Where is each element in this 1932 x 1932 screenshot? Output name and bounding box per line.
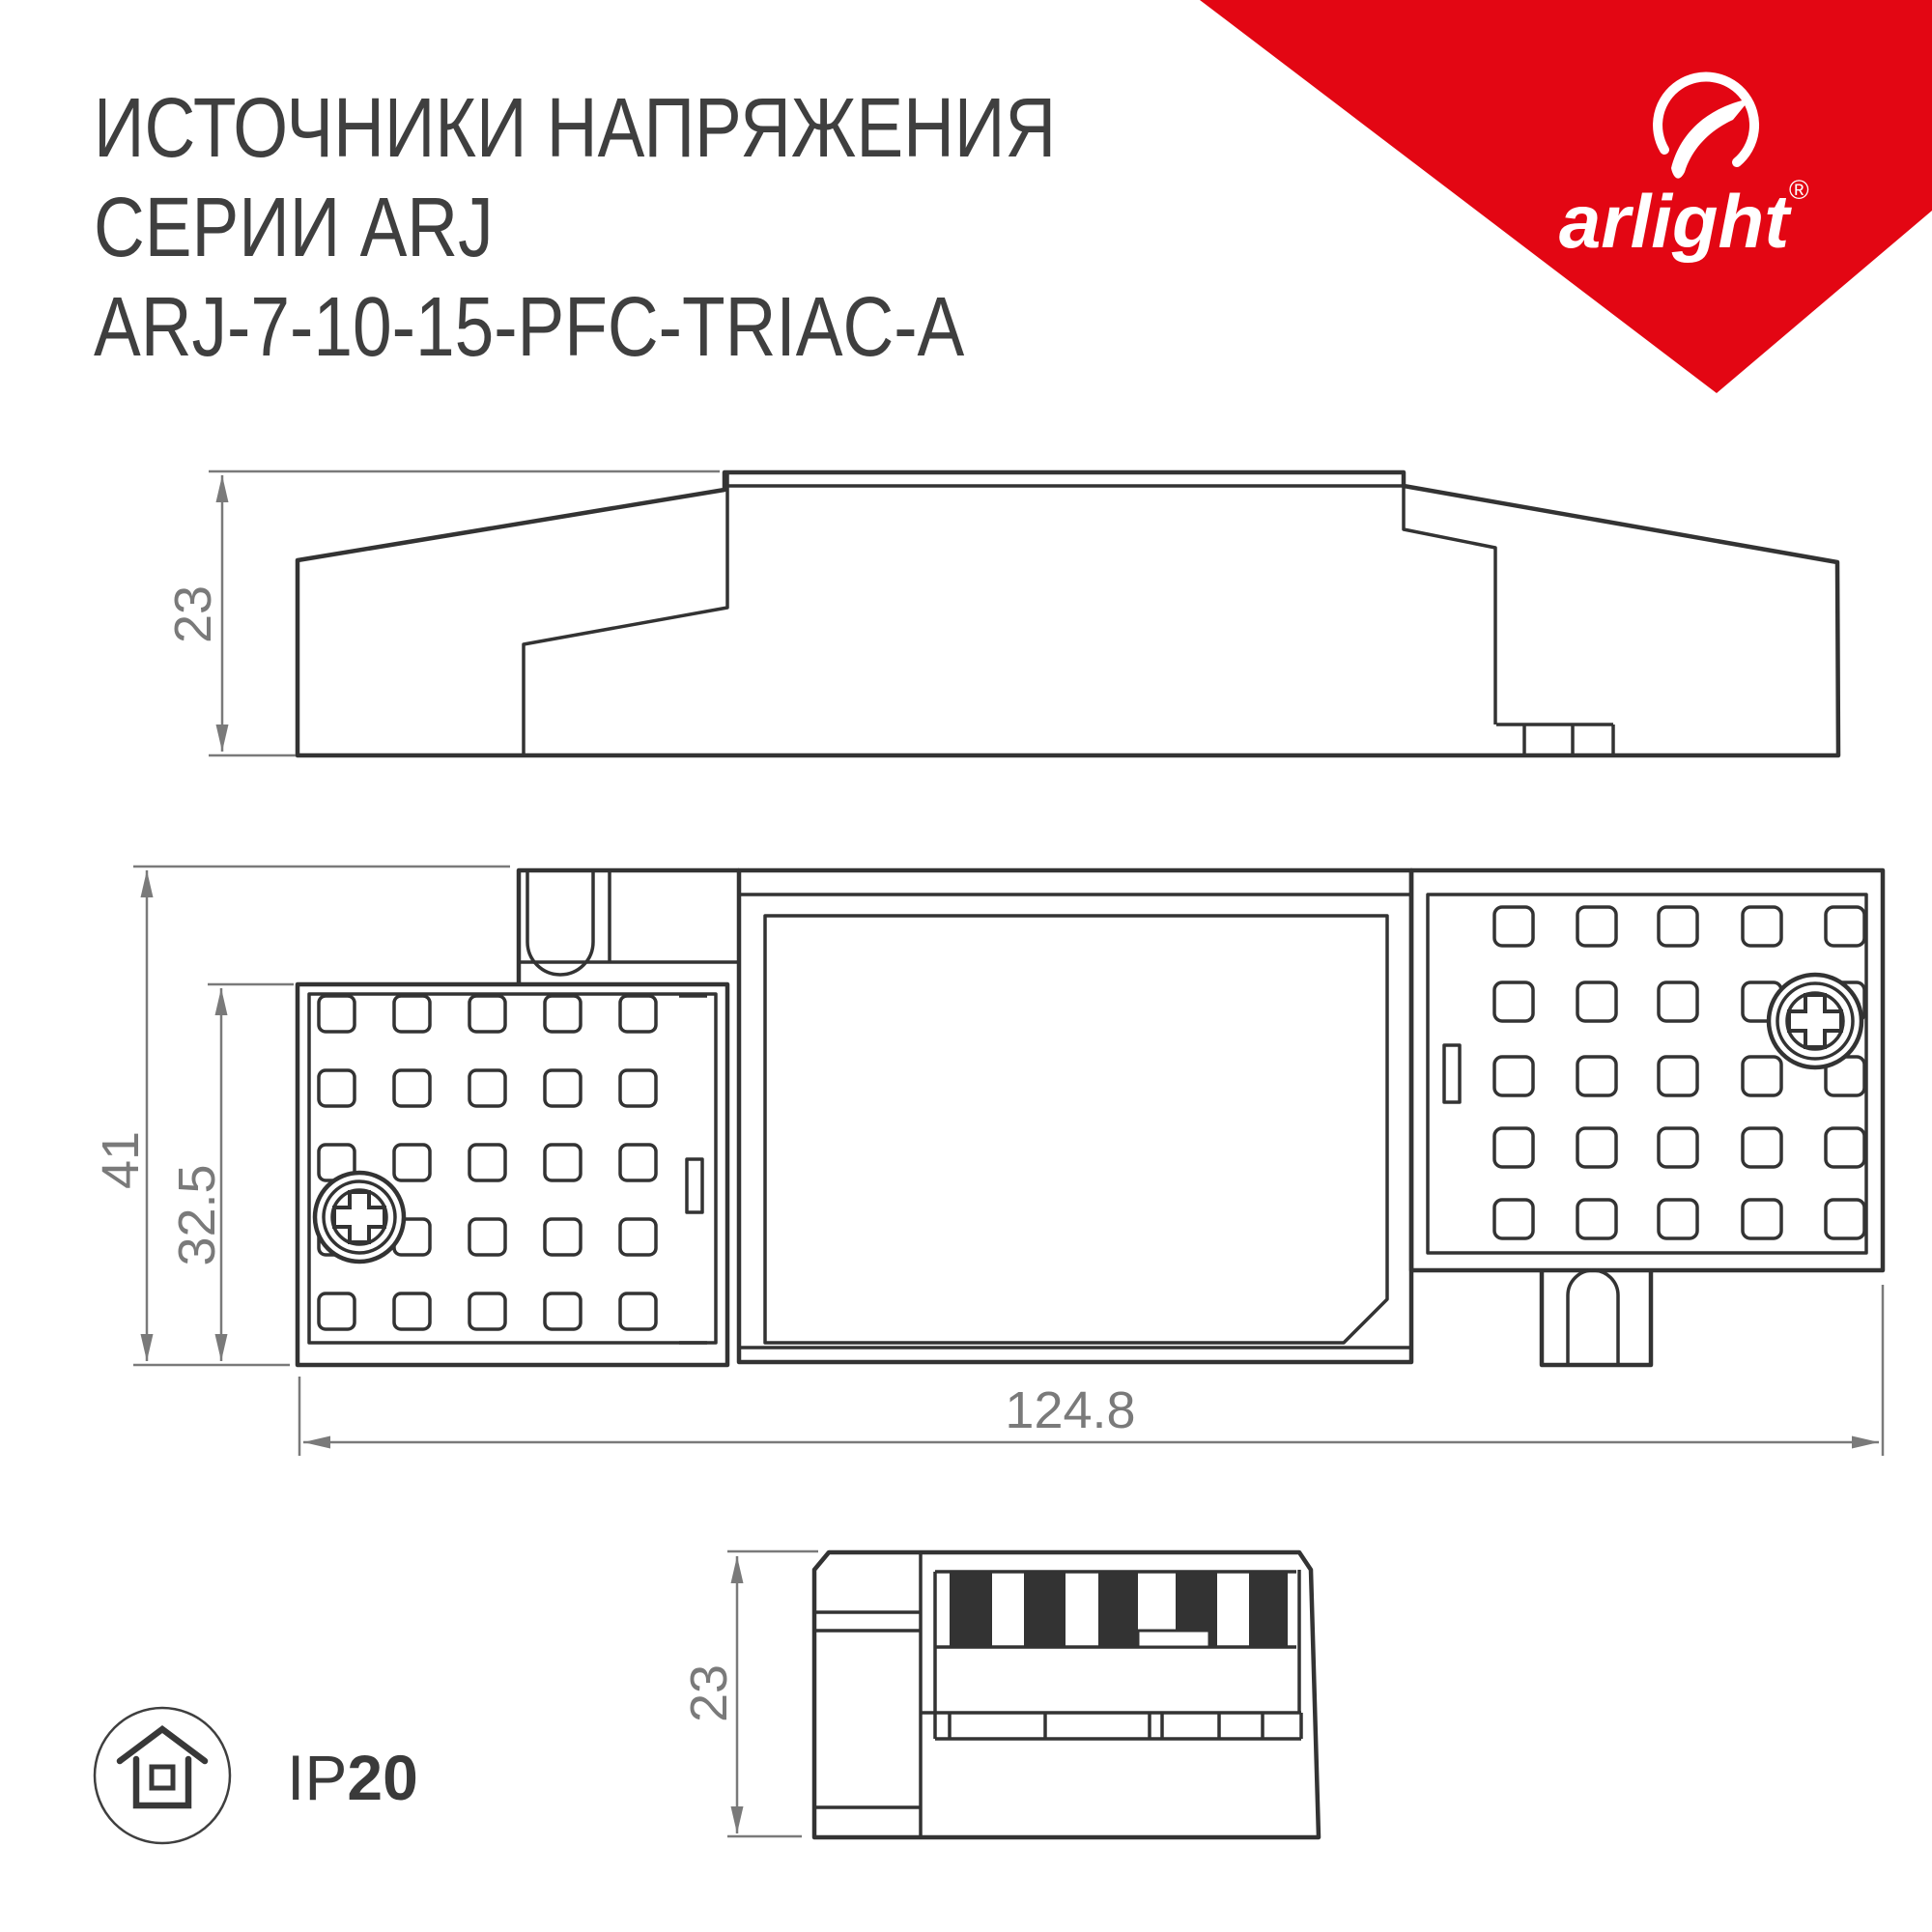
center-body-outline [739,870,1411,1362]
dim-side-height: 23 [164,471,720,755]
dim-label-body-width: 32.5 [168,1164,226,1265]
mounting-tab-bottom [1542,1270,1651,1365]
left-cap-latch [687,1159,702,1212]
dim-extension-lines [727,1551,818,1836]
dim-label-side-height: 23 [164,585,222,643]
ip-prefix: IP [287,1742,347,1813]
dim-label-length: 124.8 [1005,1381,1135,1439]
vent-hole-grid-right [1494,907,1864,1238]
terminal-slot [1098,1572,1138,1647]
right-end-cap [1411,870,1883,1270]
end-view-drawing: 23 [680,1551,1319,1837]
terminal-slot-cutout [1138,1631,1209,1647]
terminal-strip-lower [921,1713,1301,1739]
brand-logo: arlight ® [1200,0,1932,393]
dim-end-height: 23 [680,1551,818,1836]
center-body [739,870,1411,1362]
right-cap-outline [1411,870,1883,1270]
logo-registered-mark: ® [1789,175,1809,205]
tab-top-u-slot [527,870,593,975]
dim-length: 124.8 [299,1285,1883,1456]
header-title: ИСТОЧНИКИ НАПРЯЖЕНИЯ СЕРИИ ARJ ARJ-7-10-… [94,81,1056,374]
side-view-inner-step-left [524,472,727,753]
ip-rating-label: IP20 [287,1742,418,1813]
tab-bottom-outline [1542,1270,1651,1365]
screw-right [1769,975,1861,1067]
ip-value: 20 [347,1742,417,1813]
logo-wordmark: arlight [1559,179,1792,264]
dim-total-width: 41 [92,867,510,1365]
end-view-outline [814,1552,1319,1837]
left-end-cap [298,984,727,1365]
datasheet-page: ИСТОЧНИКИ НАПРЯЖЕНИЯ СЕРИИ ARJ ARJ-7-10-… [0,0,1932,1932]
screw-left [315,1173,404,1262]
label-area-rect [765,916,1387,1343]
title-line-3: ARJ-7-10-15-PFC-TRIAC-A [94,280,965,374]
right-cap-latch [1444,1045,1460,1102]
title-line-2: СЕРИИ ARJ [94,181,494,274]
terminal-slot [950,1572,992,1647]
top-view-drawing: 41 32.5 124.8 [92,867,1883,1456]
dim-body-width: 32.5 [168,984,294,1361]
vent-hole-grid-left [319,996,656,1329]
terminal-slots [950,1572,1288,1647]
dim-extension-lines [133,867,510,1365]
side-view-inner-step-right [1404,486,1495,724]
tab-top-outline [519,870,739,984]
house-icon [120,1729,205,1805]
center-body-inner-lines [739,895,1411,1348]
dim-label-total-width: 41 [92,1131,150,1189]
side-view-outline [298,472,1838,755]
side-view-terminal-blocks [1496,724,1613,753]
terminal-slot [1249,1572,1288,1647]
dim-label-end-height: 23 [680,1664,738,1722]
end-view-left-section [814,1552,921,1837]
dim-extension-lines [209,471,720,755]
title-line-1: ИСТОЧНИКИ НАПРЯЖЕНИЯ [94,81,1056,175]
tab-bottom-u-slot [1568,1270,1618,1365]
ip-rating-badge: IP20 [95,1708,418,1843]
side-view-drawing: 23 [164,471,1838,755]
terminal-slot [1024,1572,1065,1647]
tab-top-inner [519,870,739,962]
mounting-tab-top [519,870,739,984]
